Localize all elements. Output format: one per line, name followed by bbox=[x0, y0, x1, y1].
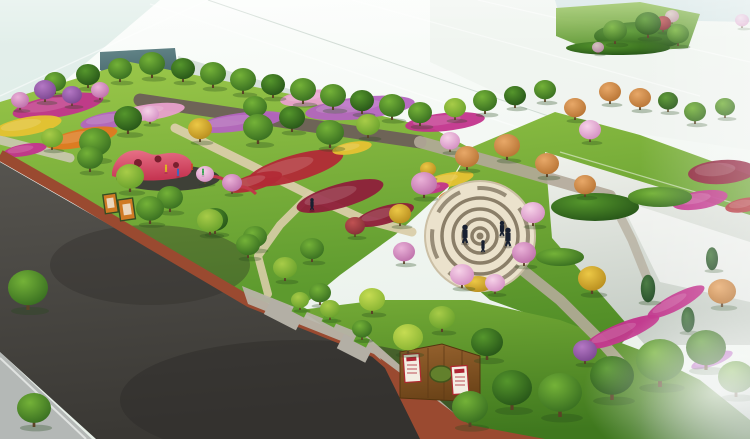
tree-shadow bbox=[474, 358, 504, 364]
tree-canopy bbox=[455, 146, 479, 167]
plaza-center-dot bbox=[477, 233, 484, 240]
tree-shadow bbox=[411, 125, 434, 130]
tree-canopy bbox=[573, 340, 597, 361]
tree-canopy bbox=[578, 266, 606, 291]
tree-shadow bbox=[117, 132, 144, 138]
tree-canopy bbox=[62, 86, 82, 104]
poster-header bbox=[454, 369, 464, 374]
tree-shadow bbox=[348, 236, 367, 240]
tree-shadow bbox=[396, 263, 417, 267]
figure-shadow bbox=[202, 176, 205, 177]
tree-shadow bbox=[355, 339, 374, 343]
tree-canopy bbox=[116, 164, 144, 189]
tree-shadow bbox=[174, 81, 197, 86]
tree-canopy bbox=[492, 370, 532, 405]
tree-shadow bbox=[20, 425, 52, 432]
tree-shadow bbox=[602, 103, 623, 107]
tree-canopy bbox=[141, 106, 159, 122]
tree-shadow bbox=[264, 97, 287, 102]
tree-shadow bbox=[44, 149, 65, 153]
tree-shadow bbox=[577, 196, 598, 200]
tree-canopy bbox=[139, 52, 165, 75]
tree-canopy bbox=[8, 270, 48, 305]
tree-shadow bbox=[143, 123, 160, 127]
tree-shadow bbox=[319, 146, 346, 152]
tree-shadow bbox=[191, 141, 214, 146]
tree-shadow bbox=[303, 261, 326, 266]
tree-canopy bbox=[574, 175, 596, 194]
tree-canopy bbox=[450, 264, 474, 285]
tree-canopy bbox=[444, 98, 466, 117]
tree-canopy bbox=[521, 202, 545, 223]
tree-canopy bbox=[230, 68, 256, 91]
tree-canopy bbox=[350, 90, 374, 111]
figure-shadow bbox=[504, 246, 513, 249]
figure-head bbox=[202, 169, 204, 171]
tree-canopy bbox=[452, 391, 488, 423]
tree-canopy bbox=[114, 106, 142, 131]
tree-shadow bbox=[455, 424, 489, 431]
tree-shadow bbox=[432, 330, 457, 335]
tree-canopy bbox=[429, 306, 455, 329]
tree-canopy bbox=[356, 114, 380, 135]
tree-canopy bbox=[279, 106, 305, 129]
tree-canopy bbox=[108, 58, 132, 79]
figure-shadow bbox=[191, 171, 194, 172]
tree-canopy bbox=[579, 120, 601, 139]
figure-head bbox=[462, 225, 467, 230]
figure-head bbox=[505, 228, 510, 233]
park-rendering-canvas bbox=[0, 0, 750, 439]
tree-shadow bbox=[537, 101, 558, 105]
tree-shadow bbox=[198, 183, 215, 187]
tree-canopy bbox=[273, 257, 297, 278]
tree-shadow bbox=[239, 257, 262, 262]
tree-canopy bbox=[222, 174, 242, 192]
tree-canopy bbox=[389, 204, 411, 223]
shrub-mass bbox=[536, 248, 584, 266]
tree-canopy bbox=[411, 172, 437, 195]
tree-shadow bbox=[495, 407, 533, 415]
tree-shadow bbox=[323, 319, 342, 323]
tree-canopy bbox=[534, 80, 556, 99]
tree-canopy bbox=[471, 328, 503, 356]
figure-shadow bbox=[309, 210, 315, 212]
tree-shadow bbox=[200, 233, 225, 238]
kiosk-panel bbox=[106, 197, 114, 208]
tree-shadow bbox=[382, 118, 407, 123]
tree-canopy bbox=[359, 288, 385, 311]
figure-head bbox=[177, 168, 179, 170]
tree-canopy bbox=[393, 324, 423, 350]
top-fade bbox=[0, 0, 750, 46]
tree-canopy bbox=[408, 102, 432, 123]
tree-shadow bbox=[453, 287, 476, 292]
tree-shadow bbox=[13, 109, 30, 113]
tree-canopy bbox=[538, 373, 582, 412]
tree-canopy bbox=[379, 94, 405, 117]
figure-head bbox=[481, 240, 485, 244]
tree-canopy bbox=[34, 80, 56, 99]
tree-canopy bbox=[345, 217, 365, 235]
tree-canopy bbox=[17, 393, 51, 423]
tree-shadow bbox=[142, 76, 167, 81]
tree-shadow bbox=[111, 81, 134, 86]
climber-hole bbox=[173, 162, 179, 168]
tree-canopy bbox=[352, 320, 372, 338]
tree-canopy bbox=[236, 234, 260, 255]
tree-canopy bbox=[91, 82, 109, 98]
tree-canopy bbox=[309, 283, 331, 302]
wall-emblem bbox=[430, 366, 452, 382]
tree-shadow bbox=[119, 190, 146, 196]
tree-shadow bbox=[225, 193, 244, 197]
tree-canopy bbox=[41, 128, 63, 147]
figure-shadow bbox=[176, 176, 180, 177]
tree-canopy bbox=[196, 166, 214, 182]
figure-shadow bbox=[480, 252, 486, 254]
tree-canopy bbox=[290, 78, 316, 101]
tree-canopy bbox=[291, 292, 309, 308]
figure-head bbox=[310, 198, 314, 202]
tree-shadow bbox=[414, 196, 439, 201]
tree-canopy bbox=[599, 82, 621, 101]
tree-canopy bbox=[512, 242, 536, 263]
tree-shadow bbox=[362, 312, 387, 317]
tree-canopy bbox=[535, 153, 559, 174]
tree-shadow bbox=[476, 113, 499, 118]
tree-shadow bbox=[581, 292, 608, 298]
tree-canopy bbox=[136, 196, 164, 221]
tree-shadow bbox=[246, 142, 275, 148]
tree-canopy bbox=[171, 58, 195, 79]
kiosk-panel bbox=[122, 203, 131, 215]
tree-canopy bbox=[243, 96, 267, 117]
tree-canopy bbox=[485, 274, 505, 292]
park-aerial-rendering bbox=[0, 0, 750, 439]
tree-shadow bbox=[538, 176, 561, 181]
tree-canopy bbox=[320, 84, 346, 107]
tree-canopy bbox=[76, 64, 100, 85]
right-fade bbox=[640, 0, 750, 439]
tree-shadow bbox=[396, 352, 425, 358]
tree-canopy bbox=[440, 132, 460, 150]
tree-shadow bbox=[80, 170, 105, 175]
figure-shadow bbox=[499, 236, 506, 238]
tree-canopy bbox=[261, 74, 285, 95]
tree-canopy bbox=[197, 209, 223, 232]
tree-shadow bbox=[524, 225, 547, 230]
tree-canopy bbox=[393, 242, 415, 261]
tree-canopy bbox=[77, 146, 103, 169]
tree-shadow bbox=[282, 130, 307, 135]
tree-shadow bbox=[11, 307, 49, 315]
tree-canopy bbox=[316, 120, 344, 145]
tree-shadow bbox=[139, 222, 166, 228]
tree-shadow bbox=[515, 265, 538, 270]
figure-shadow bbox=[164, 172, 168, 173]
tree-canopy bbox=[320, 300, 340, 318]
figure-shadow bbox=[461, 243, 470, 246]
tree-shadow bbox=[392, 225, 413, 229]
tree-shadow bbox=[488, 293, 507, 297]
tree-shadow bbox=[582, 141, 603, 145]
tree-shadow bbox=[594, 54, 605, 56]
tree-shadow bbox=[93, 99, 110, 103]
tree-shadow bbox=[203, 86, 228, 91]
tree-shadow bbox=[497, 158, 522, 163]
tree-shadow bbox=[447, 119, 468, 123]
tree-shadow bbox=[37, 101, 58, 105]
figure-head bbox=[500, 221, 504, 225]
climber-hole bbox=[155, 156, 162, 163]
tree-canopy bbox=[11, 92, 29, 108]
tree-shadow bbox=[65, 105, 84, 109]
tree-shadow bbox=[293, 309, 310, 313]
tree-canopy bbox=[200, 62, 226, 85]
tree-canopy bbox=[494, 134, 520, 157]
tree-shadow bbox=[507, 107, 528, 111]
figure-head bbox=[165, 164, 167, 166]
tree-shadow bbox=[276, 280, 299, 285]
tree-canopy bbox=[300, 238, 324, 259]
figure-head bbox=[191, 164, 193, 166]
tree-shadow bbox=[458, 169, 481, 174]
tree-shadow bbox=[541, 414, 583, 423]
tree-shadow bbox=[359, 137, 382, 142]
tree-canopy bbox=[188, 118, 212, 139]
tree-canopy bbox=[564, 98, 586, 117]
tree-canopy bbox=[504, 86, 526, 105]
tree-canopy bbox=[243, 114, 273, 140]
tree-shadow bbox=[323, 108, 348, 113]
tree-canopy bbox=[473, 90, 497, 111]
